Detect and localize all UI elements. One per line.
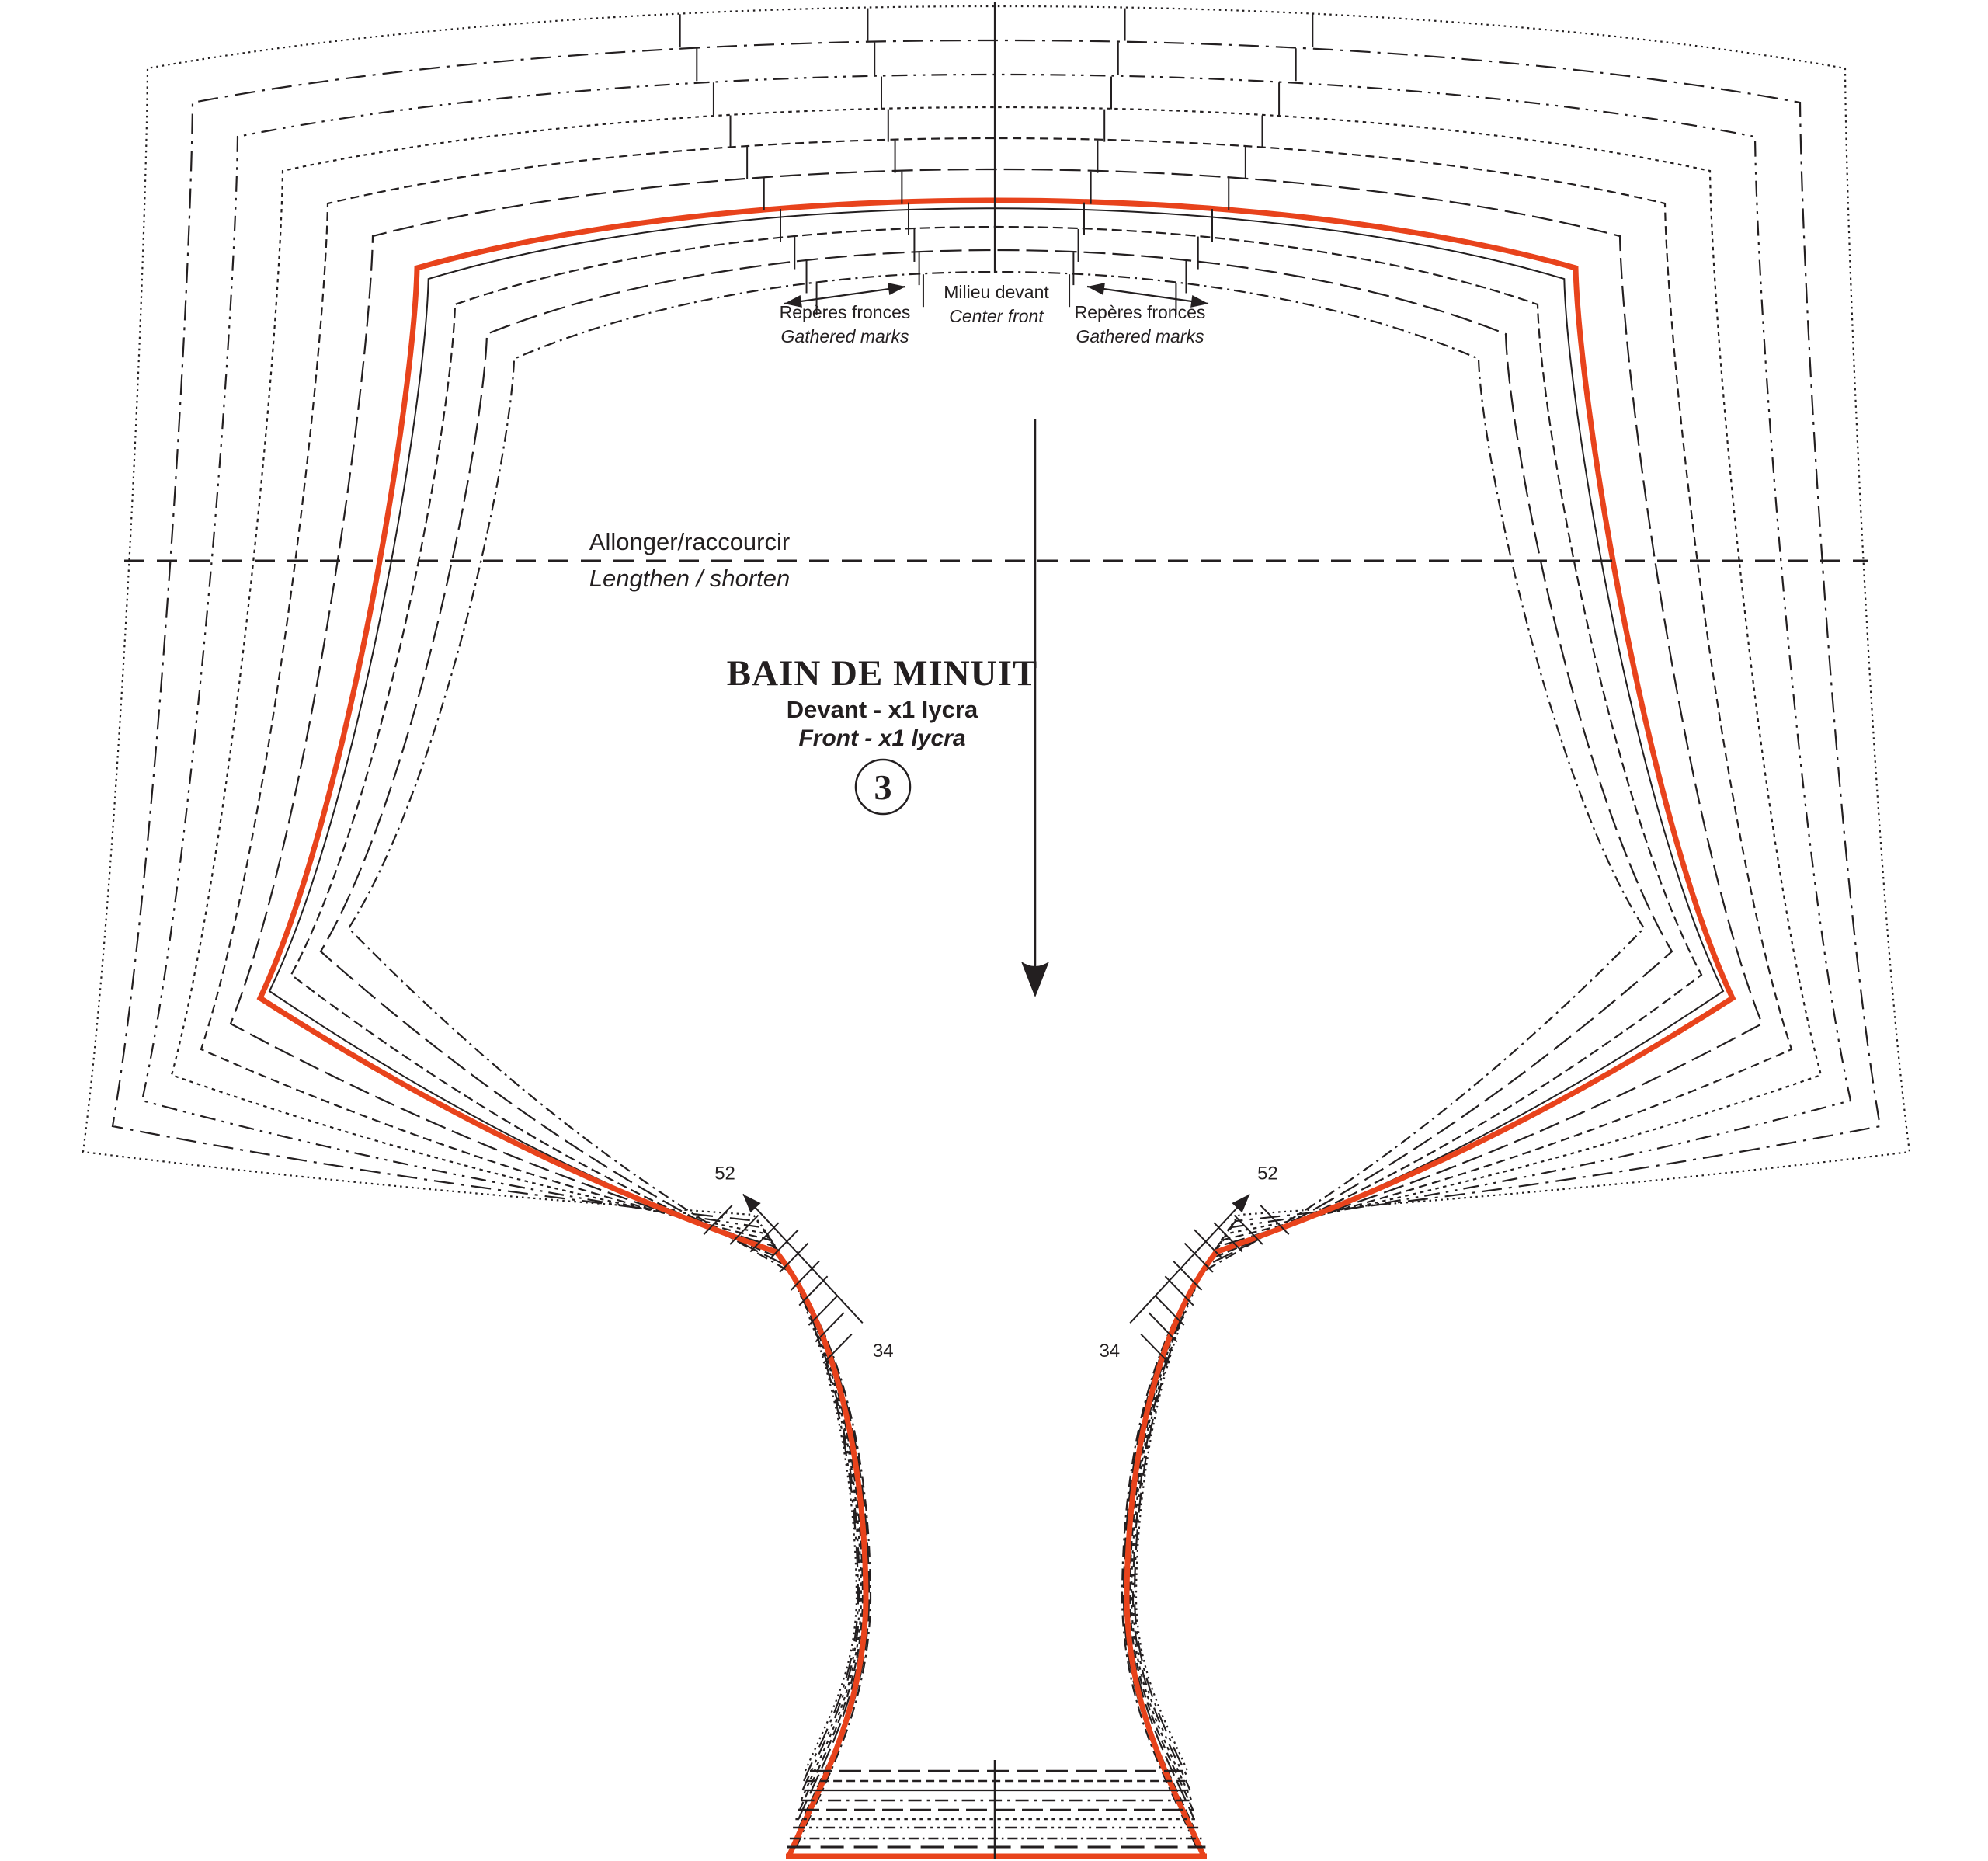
size-outline xyxy=(172,107,1821,1800)
grainline-arrowhead xyxy=(1021,962,1049,997)
center-front-label-en: Center front xyxy=(949,306,1044,326)
piece-number: 3 xyxy=(874,767,892,807)
center-front-label-fr: Milieu devant xyxy=(944,282,1049,302)
gathers-label-right-en: Gathered marks xyxy=(1076,326,1204,346)
size-outline xyxy=(321,250,1672,1838)
arrowhead xyxy=(1087,283,1105,295)
gather-span-arrow xyxy=(784,287,905,304)
arrowhead xyxy=(888,283,905,295)
size-min-label: 34 xyxy=(1099,1341,1120,1362)
size-max-label: 52 xyxy=(1257,1164,1278,1184)
pattern-title: BAIN DE MINUIT xyxy=(727,653,1038,694)
size-outline xyxy=(201,138,1792,1810)
labels: Repères fronces Gathered marks Milieu de… xyxy=(589,282,1278,1362)
size-outline xyxy=(142,75,1851,1790)
gather-span-arrow xyxy=(1087,287,1208,304)
highlighted-size-outline xyxy=(260,200,1733,1856)
lengthen-label-fr: Allonger/raccourcir xyxy=(589,528,790,555)
size-min-label: 34 xyxy=(873,1341,894,1362)
lengthen-label-en: Lengthen / shorten xyxy=(589,565,791,592)
pattern-drawing: Repères fronces Gathered marks Milieu de… xyxy=(0,0,1988,1861)
gathers-label-right-fr: Repères fronces xyxy=(1075,302,1206,322)
size-outline xyxy=(231,169,1762,1819)
piece-name-en: Front - x1 lycra xyxy=(798,725,965,751)
grading-arrow xyxy=(1130,1195,1249,1324)
size-outline xyxy=(291,227,1701,1828)
sewing-pattern-sheet: Repères fronces Gathered marks Milieu de… xyxy=(0,0,1988,1861)
notches-and-marks xyxy=(124,2,1868,1859)
grading-arrow xyxy=(743,1195,863,1324)
size-outline xyxy=(83,6,1910,1771)
size-outline xyxy=(349,272,1644,1847)
gathers-label-left-en: Gathered marks xyxy=(781,326,909,346)
gathers-label-left-fr: Repères fronces xyxy=(780,302,911,322)
piece-name-fr: Devant - x1 lycra xyxy=(787,696,978,723)
size-max-label: 52 xyxy=(714,1164,735,1184)
base-size-outline xyxy=(269,208,1723,1855)
